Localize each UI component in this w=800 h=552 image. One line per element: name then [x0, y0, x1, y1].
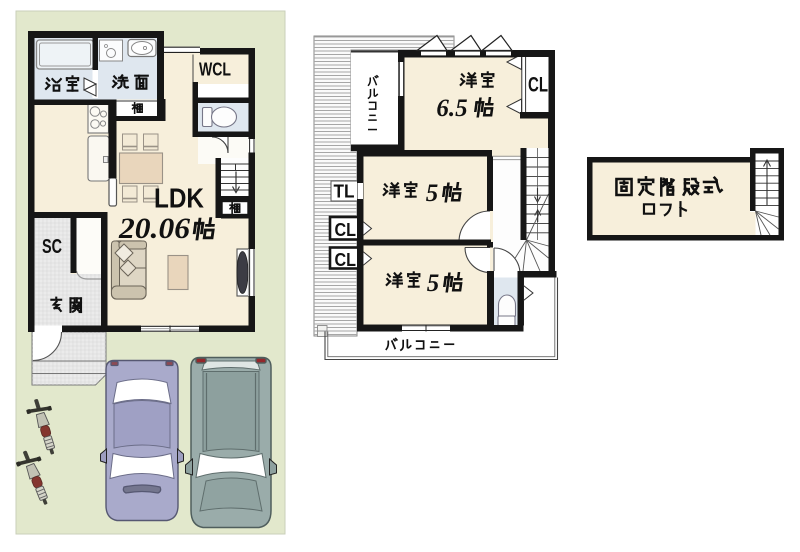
svg-text:WCL: WCL — [199, 59, 231, 80]
svg-text:20.06: 20.06 — [118, 212, 190, 245]
svg-text:TL: TL — [334, 182, 355, 202]
svg-text:CL: CL — [528, 74, 548, 97]
svg-text:CL: CL — [335, 250, 357, 270]
svg-text:5: 5 — [426, 180, 439, 207]
svg-text:5: 5 — [427, 270, 440, 297]
svg-text:6.5: 6.5 — [436, 95, 467, 122]
svg-text:LDK: LDK — [154, 183, 204, 214]
svg-text:SC: SC — [42, 236, 62, 258]
svg-text:CL: CL — [335, 220, 357, 240]
